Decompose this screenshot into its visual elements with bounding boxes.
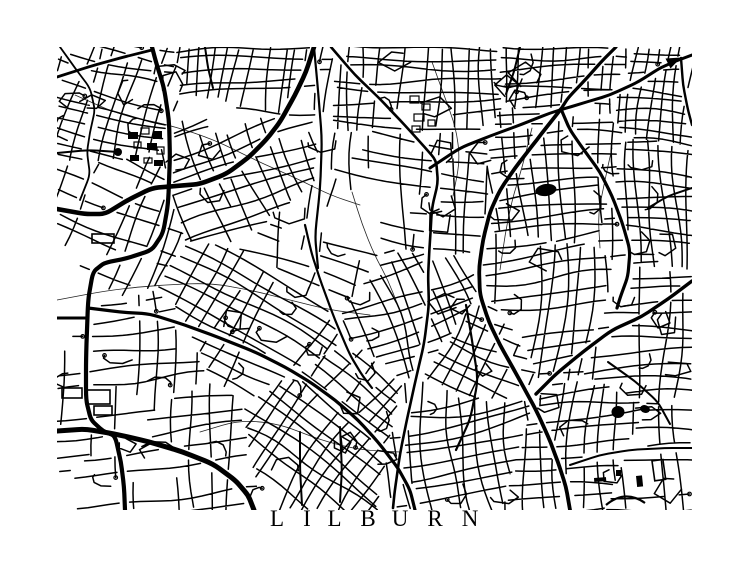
svg-text:I: I xyxy=(303,506,311,531)
svg-text:R: R xyxy=(427,506,443,531)
svg-text:L: L xyxy=(270,506,284,531)
svg-text:B: B xyxy=(360,506,375,531)
svg-text:L: L xyxy=(327,506,341,531)
svg-text:N: N xyxy=(462,506,479,531)
svg-text:U: U xyxy=(392,506,409,531)
